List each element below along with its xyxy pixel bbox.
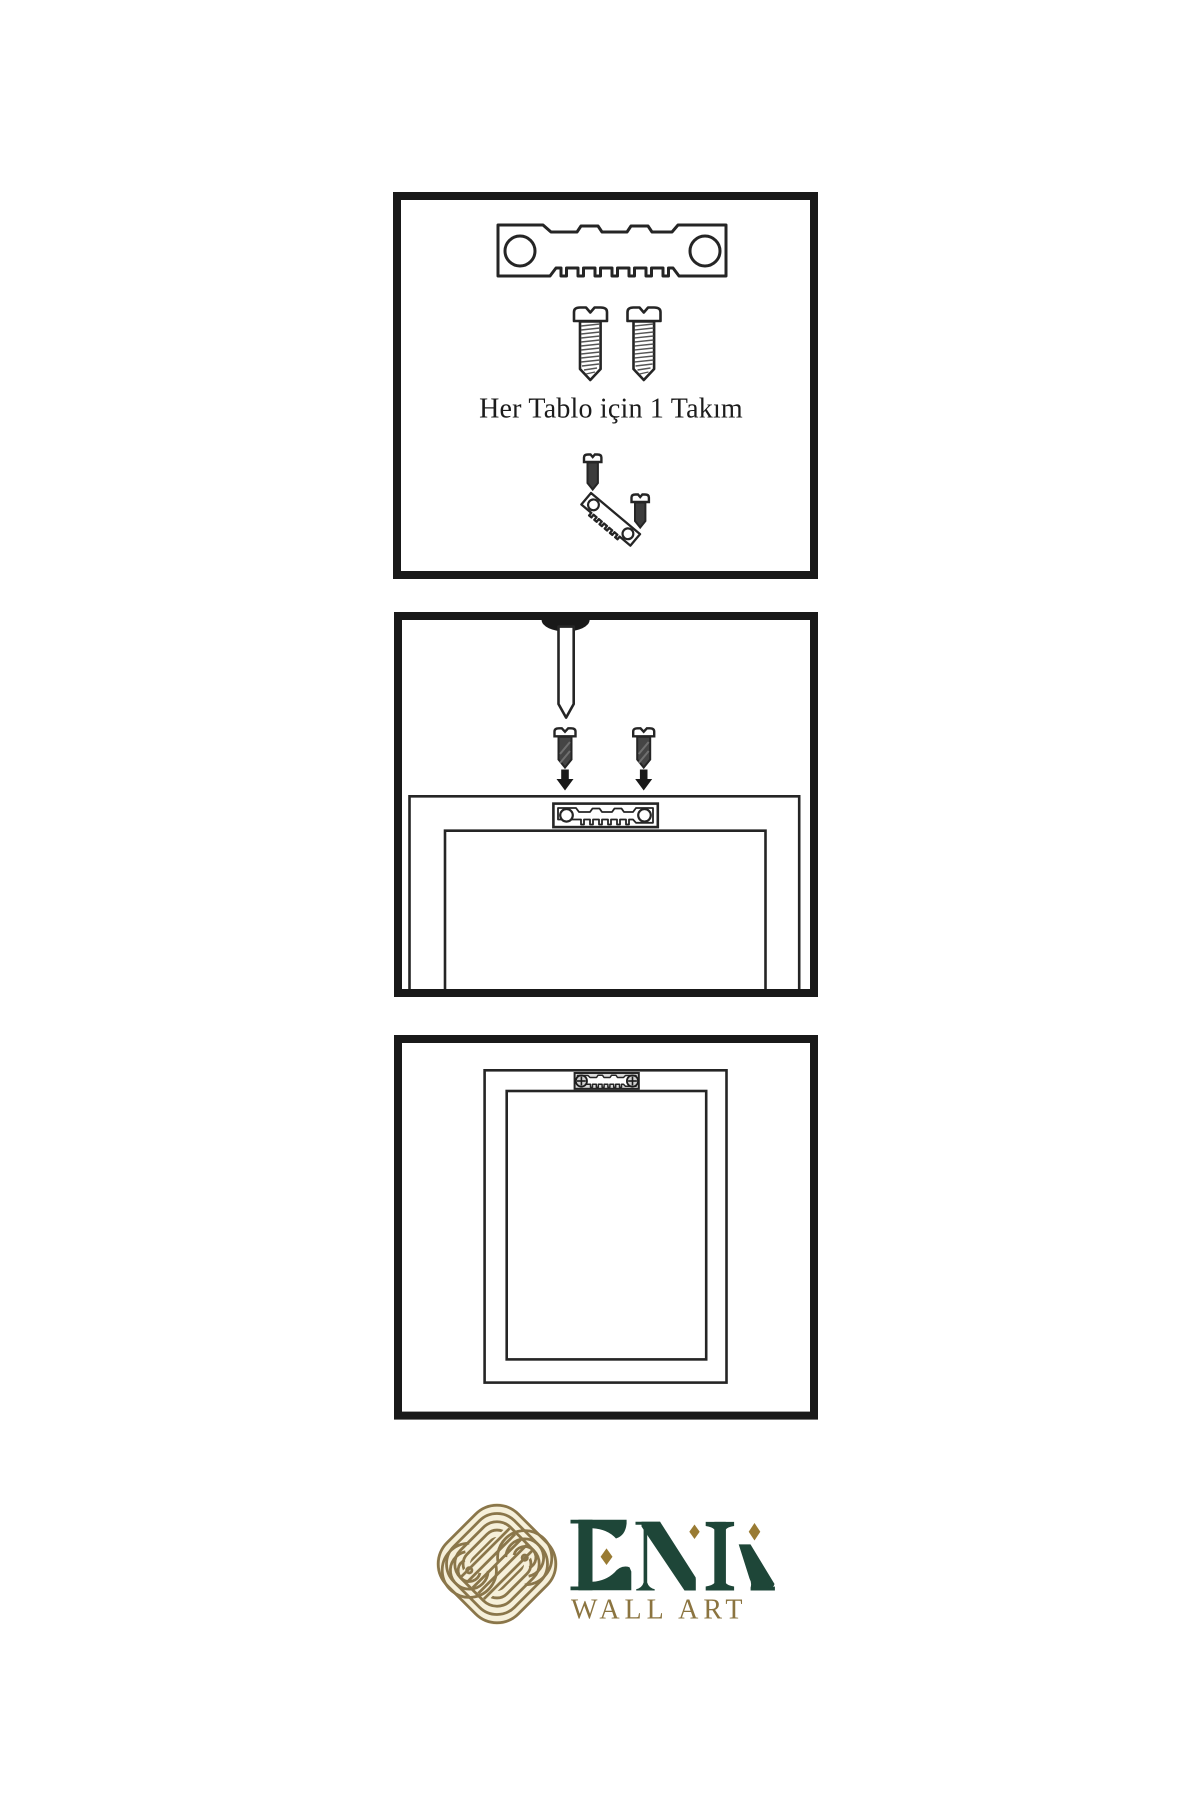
svg-text:WALL ART: WALL ART (571, 1595, 748, 1626)
svg-text:Her Tablo için 1 Takım: Her Tablo için 1 Takım (479, 394, 743, 425)
